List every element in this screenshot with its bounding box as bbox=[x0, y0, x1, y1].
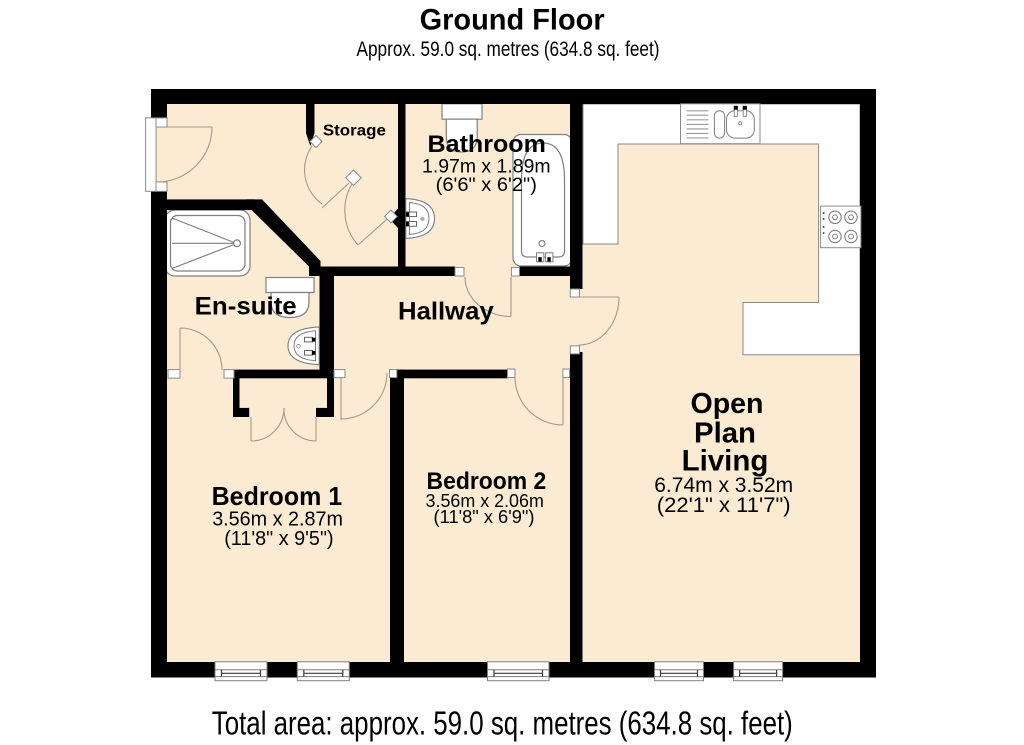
svg-text:Storage: Storage bbox=[323, 122, 386, 139]
svg-text:Total area: approx. 59.0 sq. m: Total area: approx. 59.0 sq. metres (634… bbox=[212, 705, 793, 742]
svg-text:Ground Floor: Ground Floor bbox=[420, 4, 606, 37]
svg-text:Open: Open bbox=[691, 388, 764, 420]
svg-text:Bedroom 1: Bedroom 1 bbox=[212, 481, 343, 511]
svg-text:(11'8" x 9'5"): (11'8" x 9'5") bbox=[224, 528, 333, 550]
svg-text:Bathroom: Bathroom bbox=[428, 131, 546, 158]
svg-text:Approx. 59.0 sq. metres (634.8: Approx. 59.0 sq. metres (634.8 sq. feet) bbox=[357, 38, 660, 61]
svg-text:(11'8" x 6'9"): (11'8" x 6'9") bbox=[434, 506, 535, 527]
svg-text:En-suite: En-suite bbox=[195, 292, 297, 320]
svg-text:(22'1" x 11'7"): (22'1" x 11'7") bbox=[657, 493, 791, 517]
svg-text:Hallway: Hallway bbox=[398, 298, 494, 326]
svg-text:(6'6" x 6'2"): (6'6" x 6'2") bbox=[436, 174, 537, 196]
